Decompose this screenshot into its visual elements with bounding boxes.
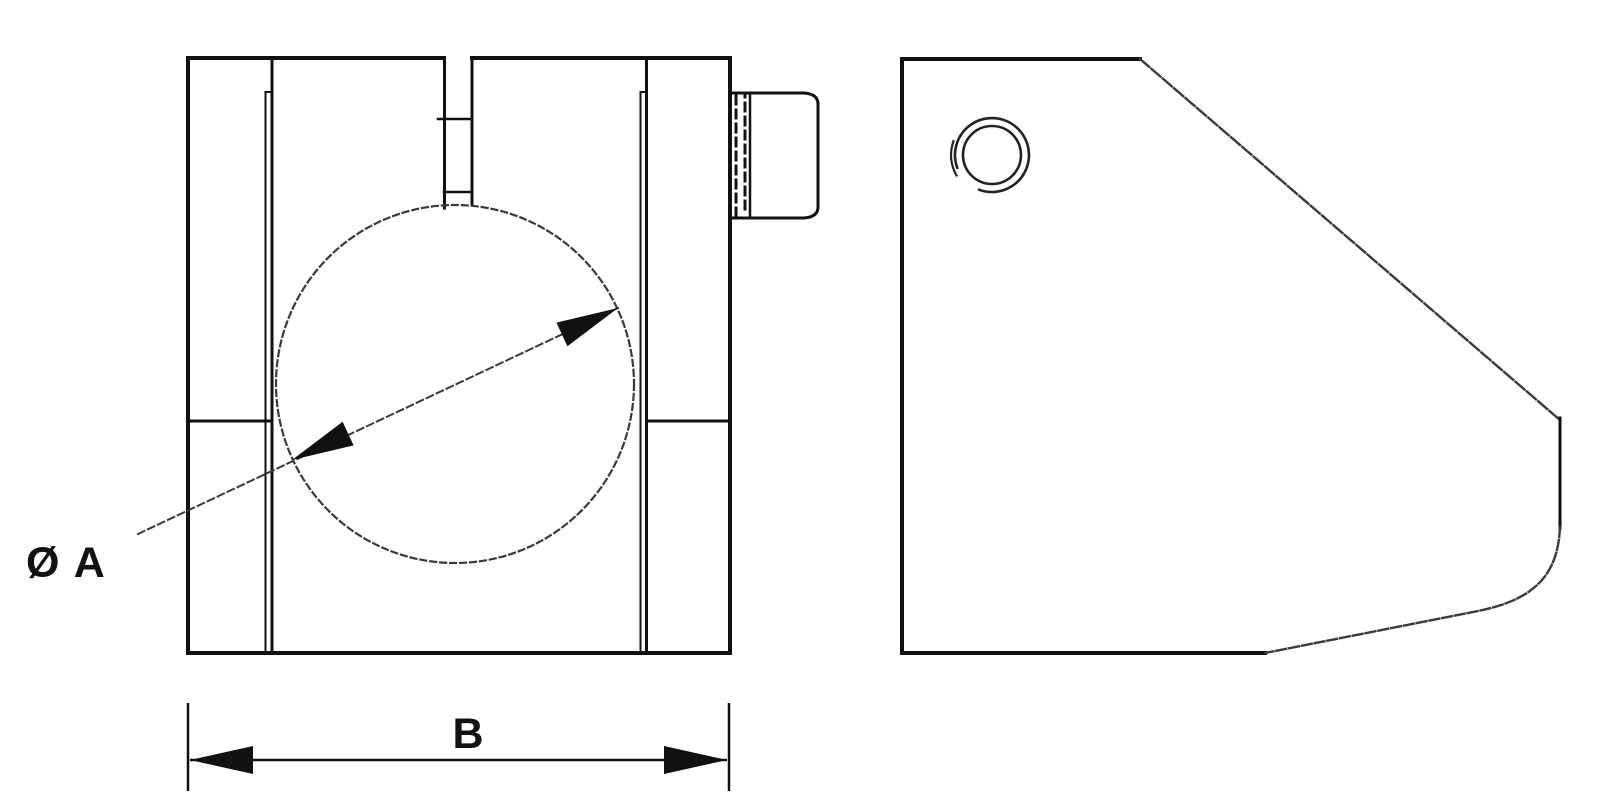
front-view [138,58,818,653]
diameter-arrow-upper [556,308,618,346]
pin-hole-inner-circle [963,126,1021,184]
pin-hole-outer-circle [955,118,1029,192]
clamp-technical-drawing: Ø A B [0,0,1624,808]
side-view [902,59,1560,653]
bore-circle [276,205,634,563]
drawing-sheet: Ø A B [0,0,1624,808]
side-chamfer-line [1140,59,1560,420]
width-label: B [452,710,485,758]
width-arrow-right [664,746,727,774]
knob-outline [730,93,818,218]
diameter-label: Ø A [26,539,107,587]
diameter-arrow-lower [292,422,354,460]
width-arrow-left [190,746,253,774]
side-bottom-curve-line [1265,527,1560,653]
